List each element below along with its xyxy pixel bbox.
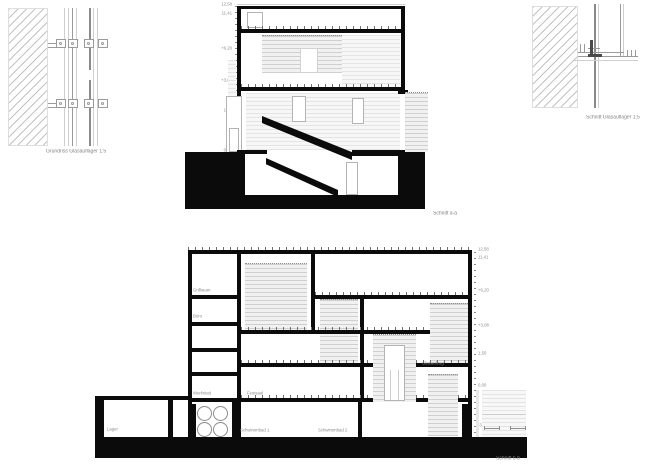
- bench-symbol: [484, 426, 500, 430]
- anchor-arm: [48, 107, 56, 108]
- basement-wall: [192, 404, 196, 437]
- lift-door: [384, 345, 405, 401]
- elevation-label: +6,20: [478, 288, 491, 293]
- elevation-label: 11,41: [478, 255, 491, 260]
- glass-lift-shaft: [405, 92, 428, 152]
- door: [352, 98, 364, 124]
- interior-wall: [237, 250, 241, 402]
- glass-pane-line: [93, 8, 94, 146]
- drawing-sheet: { "sheet": { "background": "#ffffff", "i…: [0, 0, 650, 468]
- ground-poche: [95, 437, 527, 458]
- section-detail-drawing: Schnitt Glasauflager 1:5: [528, 4, 648, 126]
- basement-ceiling-slab: [95, 396, 192, 400]
- parapet-line: [237, 4, 405, 5]
- tank-circle: [197, 406, 212, 421]
- pool-wall-block: [428, 374, 458, 436]
- plan-detail-drawing: Grundriss Glasauflager 1:5: [8, 6, 120, 156]
- entry-door: [229, 128, 239, 152]
- section-detail-caption: Schnitt Glasauflager 1:5: [586, 115, 640, 121]
- masonry-hatch: [532, 6, 578, 108]
- elevation-label: 11,41: [219, 11, 232, 16]
- glass-support-plate: [68, 99, 78, 108]
- fixing-bracket: [584, 44, 585, 52]
- tank-circle: [197, 422, 212, 437]
- mullion-line: [623, 4, 624, 56]
- floor-slab: [241, 29, 401, 33]
- frame-line: [64, 8, 65, 146]
- tank-circle: [213, 422, 228, 437]
- bolt-icon: [59, 102, 62, 105]
- ground-poche: [185, 195, 425, 209]
- wood-wall-block: [430, 303, 468, 365]
- elevation-label: 12,58: [478, 247, 491, 252]
- glass-support-block: [588, 54, 602, 57]
- fixing-bracket: [580, 44, 581, 52]
- interior-wall: [360, 299, 364, 402]
- basement-divider-wall: [168, 400, 173, 437]
- entry-wall-strip: [228, 60, 236, 98]
- elevation-label: 1,50: [478, 351, 491, 356]
- lift-door-line: [398, 370, 399, 400]
- bolt-icon: [71, 102, 74, 105]
- glass-support-plate: [84, 99, 94, 108]
- wall-opening: [300, 48, 318, 73]
- wood-wall-block: [342, 35, 400, 87]
- anchor-arm: [48, 103, 56, 104]
- glass-support-plate: [68, 39, 78, 48]
- glass-pane-line: [89, 80, 91, 146]
- bolt-icon: [71, 42, 74, 45]
- elevation-label: +3,08: [478, 323, 491, 328]
- room-label: Schwimmbad 1: [240, 428, 269, 433]
- basement-door: [346, 162, 358, 195]
- terrain-line: [482, 414, 526, 415]
- floor-slab: [241, 87, 401, 91]
- glass-support-plate: [84, 39, 94, 48]
- glass-support-plate: [98, 99, 108, 108]
- hardware-mark: [627, 50, 628, 57]
- bolt-icon: [87, 42, 90, 45]
- section-b-drawing: 12,58 11,41 +6,20 +3,08 1,50 0,00 -3,05 …: [92, 244, 544, 466]
- right-wall: [401, 6, 405, 94]
- wood-wall-block: [245, 263, 307, 330]
- bolt-icon: [59, 42, 62, 45]
- door: [292, 96, 306, 122]
- glass-support-plate: [56, 99, 66, 108]
- floor-slab: [241, 363, 373, 367]
- section-b-caption: Schnitt b-b: [496, 456, 520, 462]
- roof-slab: [188, 250, 472, 254]
- bench-symbol: [510, 426, 526, 430]
- roof-slab: [237, 6, 405, 9]
- bolt-icon: [87, 102, 90, 105]
- bolt-icon: [101, 102, 104, 105]
- plan-detail-caption: Grundriss Glasauflager 1:5: [46, 149, 106, 155]
- elevation-label: 0,00: [478, 383, 491, 388]
- floor-slab: [188, 322, 241, 326]
- frame-line: [76, 8, 77, 146]
- anchor-arm: [48, 43, 56, 44]
- ground-poche: [398, 152, 425, 197]
- room-label: Büro: [193, 314, 202, 319]
- frame-line: [72, 8, 73, 146]
- hardware-mark: [631, 50, 632, 57]
- basement-end-wall: [95, 396, 104, 437]
- lift-door-line: [390, 370, 391, 400]
- glass-pane-line: [97, 8, 98, 146]
- glass-support-plate: [56, 39, 66, 48]
- elevation-label: +6,20: [219, 46, 232, 51]
- room-label: Glasaufzug: [422, 361, 444, 366]
- floor-slab: [188, 295, 241, 299]
- bolt-icon: [101, 42, 104, 45]
- glass-support-plate: [98, 39, 108, 48]
- frame-line: [68, 8, 69, 146]
- elevation-label: 12,58: [219, 2, 232, 7]
- mullion-line: [620, 4, 621, 56]
- hardware-mark: [635, 50, 636, 57]
- support-ledge-line: [574, 60, 638, 61]
- support-ledge-line: [578, 52, 624, 53]
- anchor-arm: [48, 47, 56, 48]
- floor-slab: [188, 372, 241, 376]
- terrain-edge: [476, 390, 479, 437]
- stair-flight-lower: [266, 158, 338, 197]
- basement-wall: [462, 404, 472, 437]
- section-a-drawing: 12,58 11,41 +6,20 +3,08 1,50 0,00 -4,20 …: [180, 2, 470, 218]
- floor-slab: [188, 348, 241, 352]
- support-ledge-line: [578, 56, 638, 57]
- section-a-caption: Schnitt a-a: [433, 211, 457, 217]
- tank-circle: [213, 406, 228, 421]
- room-label: Schwimmbad 2: [318, 428, 347, 433]
- basement-wall: [358, 402, 362, 437]
- masonry-hatch: [8, 8, 48, 146]
- right-wall: [468, 250, 472, 408]
- room-label: Lager: [107, 427, 118, 432]
- room-label: Grillraum: [193, 288, 210, 293]
- glass-support-block: [590, 40, 593, 54]
- room-label: Werkstatt: [193, 391, 211, 396]
